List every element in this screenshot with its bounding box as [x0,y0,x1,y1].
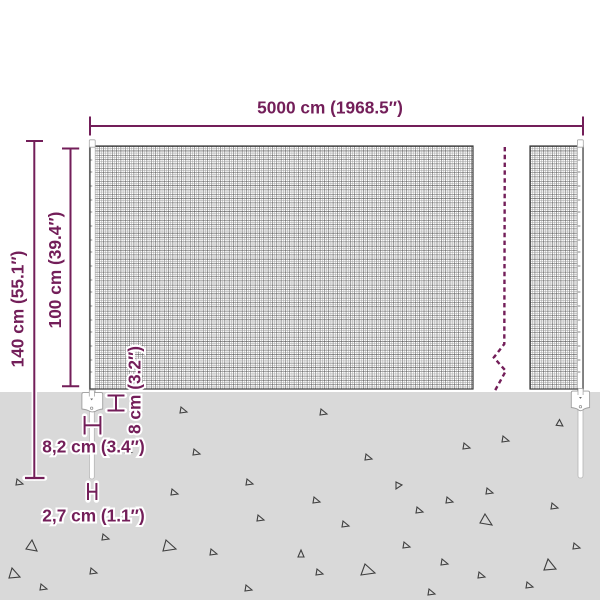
svg-text:8,2 cm (3.4″): 8,2 cm (3.4″) [42,437,144,457]
svg-text:5000 cm (1968.5″): 5000 cm (1968.5″) [257,97,403,117]
svg-text:140 cm (55.1″): 140 cm (55.1″) [8,251,28,368]
svg-text:100 cm (39.4″): 100 cm (39.4″) [45,212,65,329]
svg-text:8 cm (3.2″): 8 cm (3.2″) [125,346,145,434]
svg-text:2,7 cm (1.1″): 2,7 cm (1.1″) [42,506,144,526]
